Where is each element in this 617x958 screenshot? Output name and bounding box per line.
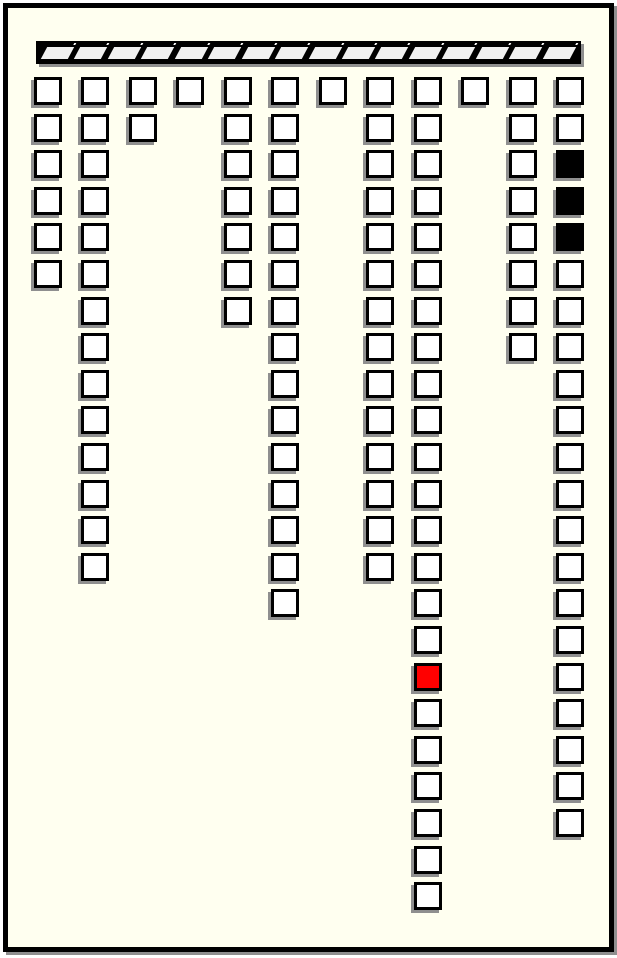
slot-c6-r13[interactable] — [271, 516, 299, 544]
slot-c9-r4[interactable] — [414, 187, 442, 215]
slot-c6-r15[interactable] — [271, 589, 299, 617]
slot-c2-r9[interactable] — [81, 370, 109, 398]
slot-c12-r21[interactable] — [556, 809, 584, 837]
slot-c1-r1[interactable] — [34, 77, 62, 105]
slot-c8-r8[interactable] — [366, 333, 394, 361]
slot-c1-r2[interactable] — [34, 114, 62, 142]
slot-c5-r4[interactable] — [224, 187, 252, 215]
slot-c12-r11[interactable] — [556, 443, 584, 471]
slot-c3-r1[interactable] — [129, 77, 157, 105]
slot-c9-r15[interactable] — [414, 589, 442, 617]
slot-c3-r2[interactable] — [129, 114, 157, 142]
slot-c2-r4[interactable] — [81, 187, 109, 215]
slot-c9-r18[interactable] — [414, 699, 442, 727]
slot-c12-r2[interactable] — [556, 114, 584, 142]
slot-c9-r12[interactable] — [414, 480, 442, 508]
slot-c11-r1[interactable] — [509, 77, 537, 105]
slot-c6-r2[interactable] — [271, 114, 299, 142]
slot-c5-r7[interactable] — [224, 297, 252, 325]
slot-c8-r4[interactable] — [366, 187, 394, 215]
slot-c6-r9[interactable] — [271, 370, 299, 398]
slot-c9-r17-selected[interactable] — [414, 663, 442, 691]
slot-c12-r3-occupied[interactable] — [556, 150, 584, 178]
slot-c12-r20[interactable] — [556, 772, 584, 800]
slot-c12-r4-occupied[interactable] — [556, 187, 584, 215]
slot-grid — [0, 0, 617, 958]
slot-c11-r3[interactable] — [509, 150, 537, 178]
slot-c2-r6[interactable] — [81, 260, 109, 288]
slot-c6-r10[interactable] — [271, 406, 299, 434]
slot-c2-r3[interactable] — [81, 150, 109, 178]
slot-c12-r16[interactable] — [556, 626, 584, 654]
slot-c1-r6[interactable] — [34, 260, 62, 288]
slot-c12-r5-occupied[interactable] — [556, 223, 584, 251]
slot-c12-r12[interactable] — [556, 480, 584, 508]
slot-c1-r5[interactable] — [34, 223, 62, 251]
slot-c8-r14[interactable] — [366, 553, 394, 581]
slot-c6-r12[interactable] — [271, 480, 299, 508]
slot-c6-r4[interactable] — [271, 187, 299, 215]
slot-c12-r7[interactable] — [556, 297, 584, 325]
slot-c2-r14[interactable] — [81, 553, 109, 581]
slot-c1-r4[interactable] — [34, 187, 62, 215]
slot-c12-r6[interactable] — [556, 260, 584, 288]
slot-c9-r2[interactable] — [414, 114, 442, 142]
slot-c9-r16[interactable] — [414, 626, 442, 654]
slot-c9-r23[interactable] — [414, 882, 442, 910]
slot-c8-r1[interactable] — [366, 77, 394, 105]
slot-c2-r10[interactable] — [81, 406, 109, 434]
slot-c12-r1[interactable] — [556, 77, 584, 105]
slot-c11-r2[interactable] — [509, 114, 537, 142]
slot-c9-r22[interactable] — [414, 846, 442, 874]
slot-c6-r7[interactable] — [271, 297, 299, 325]
slot-c9-r10[interactable] — [414, 406, 442, 434]
slot-c9-r6[interactable] — [414, 260, 442, 288]
slot-c11-r8[interactable] — [509, 333, 537, 361]
slot-c10-r1[interactable] — [461, 77, 489, 105]
slot-c9-r1[interactable] — [414, 77, 442, 105]
slot-c12-r19[interactable] — [556, 736, 584, 764]
slot-c12-r13[interactable] — [556, 516, 584, 544]
slot-c12-r9[interactable] — [556, 370, 584, 398]
slot-c11-r6[interactable] — [509, 260, 537, 288]
slot-c12-r17[interactable] — [556, 663, 584, 691]
slot-c12-r14[interactable] — [556, 553, 584, 581]
slot-c2-r7[interactable] — [81, 297, 109, 325]
slot-c5-r2[interactable] — [224, 114, 252, 142]
slot-c9-r19[interactable] — [414, 736, 442, 764]
slot-c8-r12[interactable] — [366, 480, 394, 508]
slot-c5-r5[interactable] — [224, 223, 252, 251]
slot-c9-r9[interactable] — [414, 370, 442, 398]
slot-c8-r11[interactable] — [366, 443, 394, 471]
slot-c9-r7[interactable] — [414, 297, 442, 325]
slot-c2-r11[interactable] — [81, 443, 109, 471]
slot-c5-r6[interactable] — [224, 260, 252, 288]
slot-c5-r3[interactable] — [224, 150, 252, 178]
slot-c6-r1[interactable] — [271, 77, 299, 105]
slot-c8-r10[interactable] — [366, 406, 394, 434]
slot-c1-r3[interactable] — [34, 150, 62, 178]
slot-c11-r7[interactable] — [509, 297, 537, 325]
slot-c8-r2[interactable] — [366, 114, 394, 142]
slot-c6-r11[interactable] — [271, 443, 299, 471]
slot-c8-r5[interactable] — [366, 223, 394, 251]
slot-c6-r3[interactable] — [271, 150, 299, 178]
slot-c2-r2[interactable] — [81, 114, 109, 142]
slot-c11-r4[interactable] — [509, 187, 537, 215]
slot-c9-r5[interactable] — [414, 223, 442, 251]
slot-c9-r20[interactable] — [414, 772, 442, 800]
slot-c12-r15[interactable] — [556, 589, 584, 617]
slot-c11-r5[interactable] — [509, 223, 537, 251]
slot-c8-r7[interactable] — [366, 297, 394, 325]
slot-c9-r21[interactable] — [414, 809, 442, 837]
slot-c6-r5[interactable] — [271, 223, 299, 251]
slot-c9-r13[interactable] — [414, 516, 442, 544]
slot-c2-r1[interactable] — [81, 77, 109, 105]
slot-c12-r8[interactable] — [556, 333, 584, 361]
slot-c6-r14[interactable] — [271, 553, 299, 581]
slot-c8-r6[interactable] — [366, 260, 394, 288]
slot-c9-r8[interactable] — [414, 333, 442, 361]
slot-c8-r13[interactable] — [366, 516, 394, 544]
slot-c9-r14[interactable] — [414, 553, 442, 581]
slot-c12-r10[interactable] — [556, 406, 584, 434]
slot-c2-r8[interactable] — [81, 333, 109, 361]
slot-c8-r3[interactable] — [366, 150, 394, 178]
slot-c9-r3[interactable] — [414, 150, 442, 178]
slot-c8-r9[interactable] — [366, 370, 394, 398]
slot-c2-r12[interactable] — [81, 480, 109, 508]
slot-c12-r18[interactable] — [556, 699, 584, 727]
slot-c2-r5[interactable] — [81, 223, 109, 251]
slot-c6-r8[interactable] — [271, 333, 299, 361]
slot-c2-r13[interactable] — [81, 516, 109, 544]
slot-c9-r11[interactable] — [414, 443, 442, 471]
slot-c6-r6[interactable] — [271, 260, 299, 288]
slot-c4-r1[interactable] — [176, 77, 204, 105]
slot-c7-r1[interactable] — [319, 77, 347, 105]
slot-c5-r1[interactable] — [224, 77, 252, 105]
